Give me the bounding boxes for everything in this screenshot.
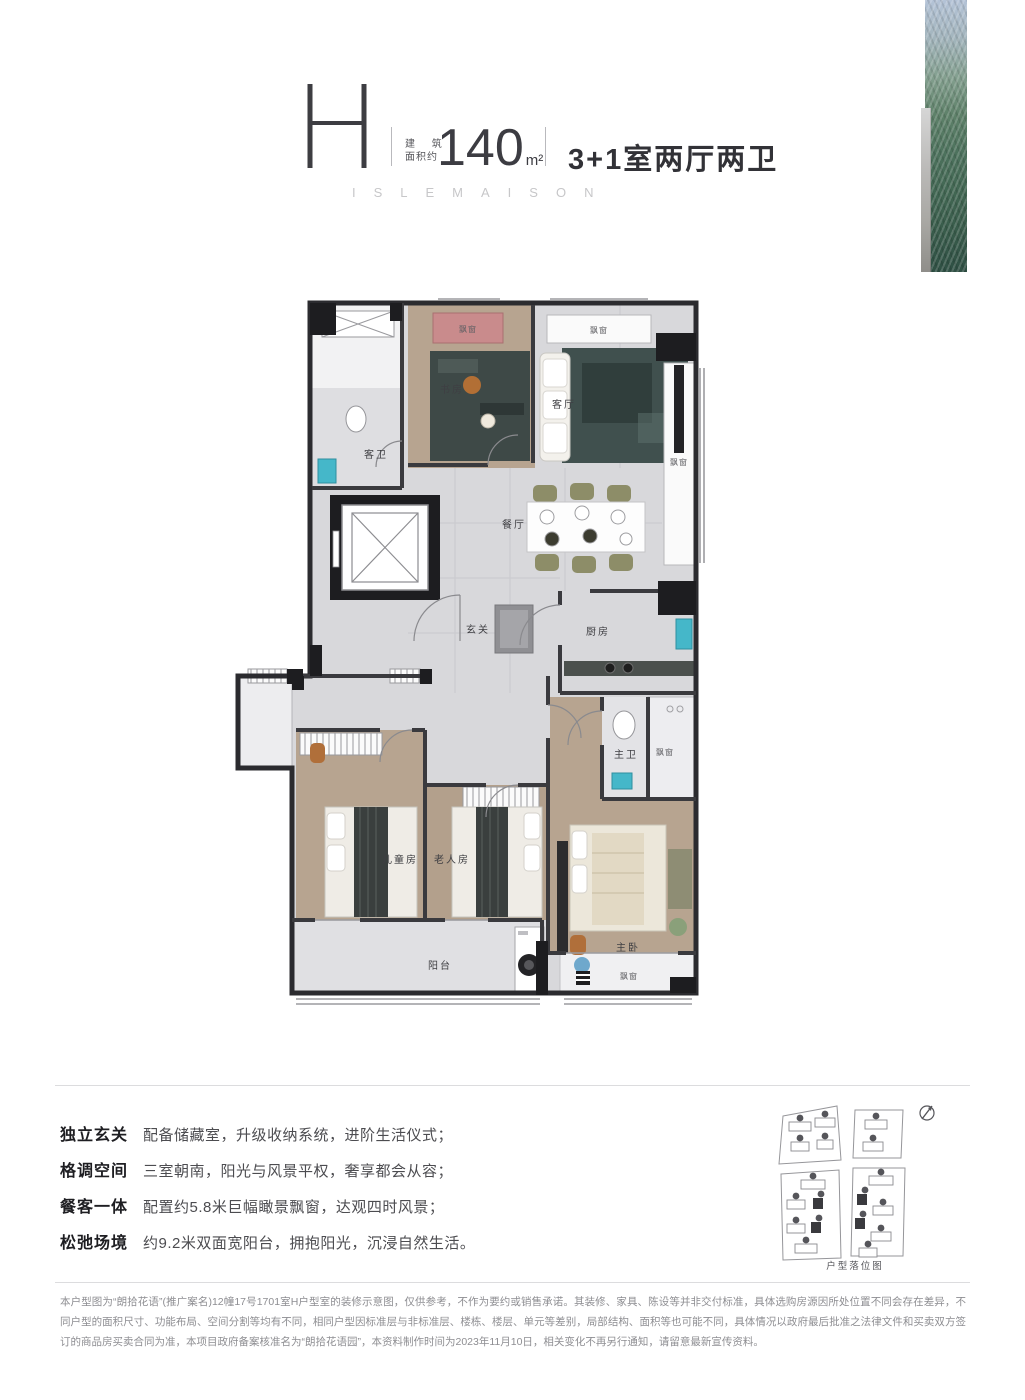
feature-desc: 配备储藏室，升级收纳系统，进阶生活仪式； [143,1124,453,1145]
glass-texture-image [925,0,967,272]
feature-row: 独立玄关 配备储藏室，升级收纳系统，进阶生活仪式； [60,1121,680,1143]
elevator-shaft [330,495,440,600]
brochure-page: 建 筑 面积约 140 m² 3+1室两厅两卫 ISLEMAISON [0,0,1025,1400]
feature-desc: 约9.2米双面宽阳台，拥抱阳光，沉浸自然生活。 [143,1232,475,1253]
highlighted-buildings [811,1194,867,1233]
guest-bath-label: 客卫 [364,448,388,461]
svg-text:飘窗: 飘窗 [670,457,688,467]
dining-label: 餐厅 [502,518,526,531]
feature-list: 独立玄关 配备储藏室，升级收纳系统，进阶生活仪式； 格调空间 三室朝南，阳光与风… [60,1121,680,1251]
living-bay-window: 飘窗 [547,315,651,343]
kids-room-label: 儿童房 [382,853,418,866]
master-bay-label: 飘窗 [620,971,638,981]
floorplan-drawing: 飘窗 飘窗 飘窗 [230,293,725,1013]
foyer-label: 玄关 [466,623,490,636]
divider-bottom [55,1282,970,1283]
dining-table-set [527,483,645,573]
feature-label: 餐客一体 [60,1193,143,1217]
siteplan-caption: 户型落位图 [775,1258,935,1272]
svg-text:飘窗: 飘窗 [459,324,477,334]
elder-room-label: 老人房 [434,853,470,866]
svg-text:飘窗: 飘窗 [590,325,608,335]
feature-row: 松弛场境 约9.2米双面宽阳台，拥抱阳光，沉浸自然生活。 [60,1229,680,1251]
floor-lamp [481,414,495,428]
study-rug [430,351,530,461]
header-divider-2 [545,127,546,166]
divider-top [55,1085,970,1086]
glass-metal-bar [921,108,931,272]
feature-label: 独立玄关 [60,1121,143,1145]
area-value: 140 m² [437,118,543,178]
layout-description: 3+1室两厅两卫 [568,136,778,178]
living-label: 客厅 [552,398,576,411]
study-chair [463,376,481,394]
balcony-label: 阳台 [428,959,452,972]
feature-desc: 三室朝南，阳光与风景平权，奢享都会从容； [143,1160,453,1181]
brand-wordmark: ISLEMAISON [352,185,611,200]
feature-row: 餐客一体 配置约5.8米巨幅瞰景飘窗，达观四时风景； [60,1193,680,1215]
guest-bath-sink [318,459,336,483]
kitchen-label: 厨房 [586,625,610,638]
guest-toilet [346,406,366,432]
header-divider-1 [391,127,392,166]
feature-label: 松弛场境 [60,1229,143,1253]
balcony-floor [292,921,542,995]
master-bath-bay-label: 飘窗 [656,747,674,757]
compass-icon [920,1106,934,1120]
study-label: 书房 [440,383,464,396]
service-platform [238,676,292,768]
feature-desc: 配置约5.8米巨幅瞰景飘窗，达观四时风景； [143,1196,444,1217]
bay-decor [574,957,590,985]
study-bay-window: 飘窗 [433,313,503,343]
site-location-map: 户型落位图 [775,1098,970,1276]
plan-letter-h [306,84,368,173]
legal-disclaimer: 本户型图为“朗拾花语”(推广案名)12幢17号1701室H户型室的装修示意图，仅… [60,1292,966,1352]
master-bedroom-label: 主卧 [616,941,640,954]
feature-row: 格调空间 三室朝南，阳光与风景平权，奢享都会从容； [60,1157,680,1179]
master-bath-label: 主卫 [614,749,638,761]
feature-label: 格调空间 [60,1157,143,1181]
tv-cabinet [674,365,684,453]
